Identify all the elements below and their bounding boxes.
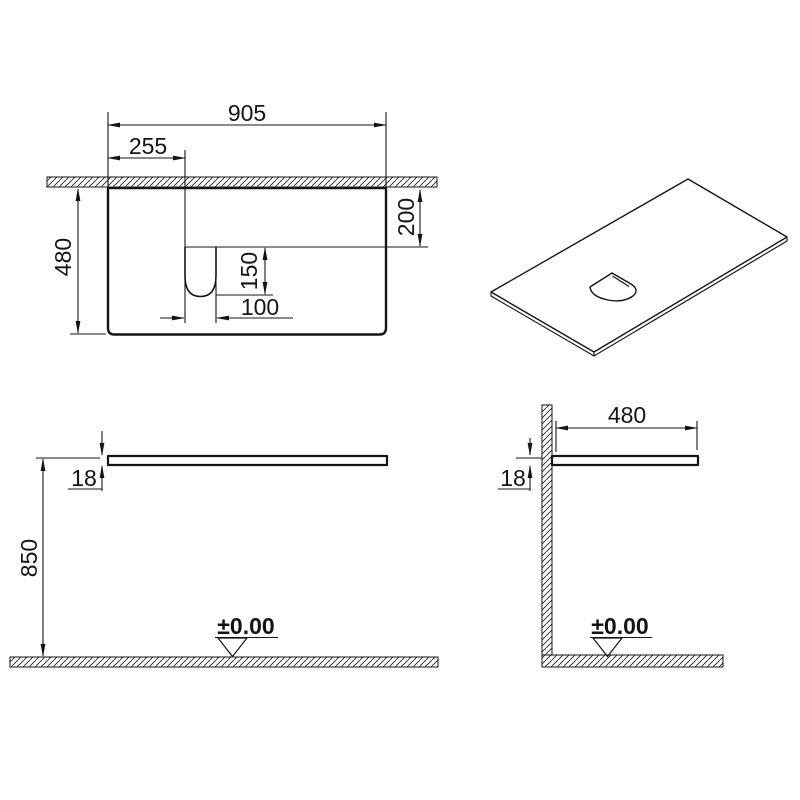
datum-triangle: [593, 638, 622, 657]
floor-hatch: [10, 657, 438, 667]
technical-drawing: 905 255 480 200 150 100: [0, 0, 800, 800]
wall-hatch: [47, 177, 437, 187]
dim-text-cutout-width: 100: [241, 294, 279, 320]
plan-view: 905 255 480 200 150 100: [47, 100, 437, 335]
dim-text-height: 850: [16, 539, 42, 577]
wall-hatch: [542, 405, 552, 655]
isometric-view: [491, 179, 787, 356]
drawing-canvas: 905 255 480 200 150 100: [0, 0, 800, 800]
dim-text-width: 905: [228, 100, 266, 126]
dim-text-cutout-from-front: 200: [393, 198, 419, 236]
datum-text: ±0.00: [591, 613, 648, 639]
panel-edge: [552, 456, 698, 465]
dim-text-depth: 480: [50, 238, 76, 276]
dim-text-cutout-from-left: 255: [129, 133, 167, 159]
panel-edge: [108, 456, 387, 465]
dim-text-thickness: 18: [500, 465, 526, 491]
datum-triangle: [218, 638, 247, 657]
side-elevation: 480 18 ±0.00: [498, 402, 723, 667]
floor-hatch: [542, 655, 723, 667]
dim-text-depth: 480: [608, 402, 646, 428]
datum-text: ±0.00: [217, 613, 274, 639]
front-elevation: 18 850 ±0.00: [10, 431, 438, 667]
dim-text-cutout-length: 150: [236, 252, 262, 290]
iso-top-face: [491, 179, 787, 352]
dim-text-thickness: 18: [71, 465, 97, 491]
